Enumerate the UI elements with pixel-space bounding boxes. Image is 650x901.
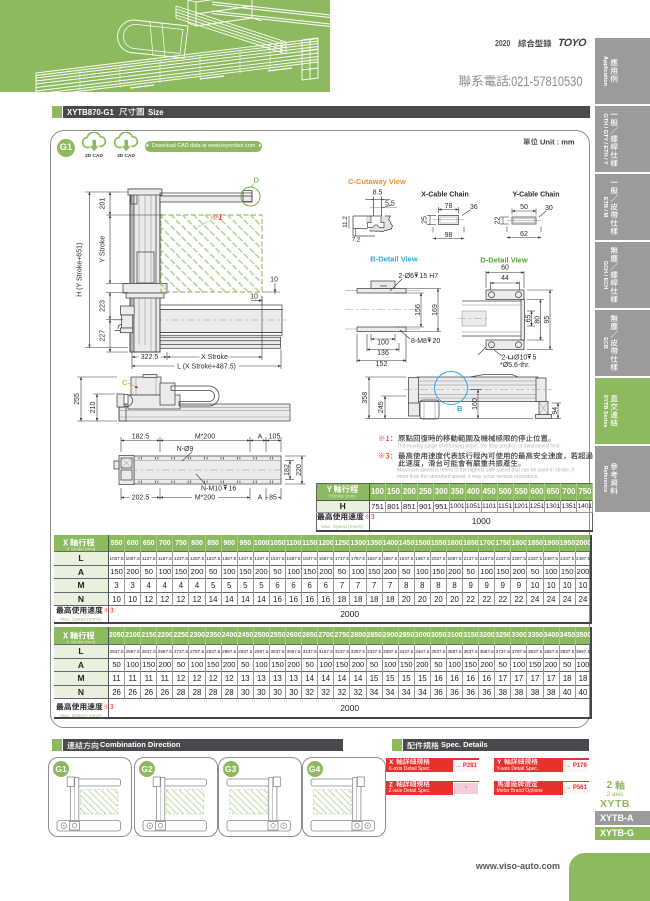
svg-text:N-Ø9: N-Ø9 — [177, 446, 194, 453]
svg-text:8-M8: 8-M8 — [411, 338, 427, 345]
svg-text:Y: Y — [497, 759, 502, 766]
svg-text:44: 44 — [501, 275, 509, 282]
svg-text:220: 220 — [296, 464, 303, 476]
svg-text:182: 182 — [284, 464, 291, 476]
svg-text:358: 358 — [362, 392, 369, 404]
svg-text:B: B — [457, 404, 463, 413]
svg-text:X Stroke (mm): X Stroke (mm) — [66, 640, 96, 645]
svg-text:80: 80 — [535, 316, 542, 324]
svg-text:Max. Speed (mm/s): Max. Speed (mm/s) — [321, 524, 363, 530]
svg-text:more than the strandard speed,: more than the strandard speed, it may oc… — [397, 474, 539, 480]
svg-text:Y Stroke: Y Stroke — [100, 236, 107, 263]
svg-text:8.5: 8.5 — [373, 190, 383, 197]
svg-text:H (Y Stroke+651): H (Y Stroke+651) — [77, 243, 84, 297]
svg-text:Maximum speed is refers to the: Maximum speed is refers to the highest s… — [397, 468, 575, 474]
svg-text:322.5: 322.5 — [141, 354, 159, 361]
svg-text:20: 20 — [433, 338, 441, 345]
svg-text:Z: Z — [389, 782, 393, 789]
svg-text:L (X Stroke+487.5): L (X Stroke+487.5) — [177, 363, 236, 370]
svg-text:30: 30 — [545, 205, 553, 212]
svg-text:YStroke (mm): YStroke (mm) — [328, 494, 356, 499]
svg-text:B-Detail View: B-Detail View — [370, 255, 418, 264]
svg-text:22: 22 — [495, 217, 502, 225]
svg-text:M*200: M*200 — [195, 434, 215, 441]
svg-text:201: 201 — [100, 198, 107, 210]
svg-text:5.5: 5.5 — [385, 201, 395, 208]
svg-text:7.2: 7.2 — [352, 237, 361, 244]
svg-text:The moving range of returning: The moving range of returning origin, th… — [397, 444, 561, 450]
svg-text:202.5: 202.5 — [132, 495, 150, 502]
svg-text:N-M10: N-M10 — [201, 486, 222, 493]
svg-text:10: 10 — [270, 277, 278, 284]
svg-text:160: 160 — [472, 398, 479, 410]
svg-text:152: 152 — [376, 361, 388, 368]
svg-text:65: 65 — [526, 315, 533, 323]
svg-text:85: 85 — [269, 495, 277, 502]
svg-text:Unit : mm: Unit : mm — [540, 138, 575, 147]
svg-text:A: A — [258, 434, 263, 441]
svg-text:X Stroke (mm): X Stroke (mm) — [66, 547, 96, 552]
svg-text:10: 10 — [250, 294, 258, 301]
svg-text:62: 62 — [520, 231, 528, 238]
svg-text:156: 156 — [415, 304, 422, 316]
svg-text:Max. Speed (mm/s): Max. Speed (mm/s) — [60, 617, 102, 623]
svg-text:*Ø5.6-thr.: *Ø5.6-thr. — [500, 362, 530, 369]
svg-text:X: X — [389, 759, 394, 766]
svg-text:255: 255 — [74, 393, 81, 405]
svg-text:36: 36 — [470, 204, 478, 211]
svg-text:D-Detail View: D-Detail View — [480, 256, 528, 265]
svg-text:169: 169 — [432, 304, 439, 316]
svg-text:136: 136 — [377, 350, 389, 357]
svg-text:X-Cable Chain: X-Cable Chain — [421, 192, 468, 199]
svg-text:5: 5 — [533, 355, 537, 362]
svg-text:Y-Cable Chain: Y-Cable Chain — [512, 192, 559, 199]
svg-text:16: 16 — [229, 486, 237, 493]
svg-text:15 H7: 15 H7 — [420, 273, 439, 280]
svg-text:Max. Speed (mm/s): Max. Speed (mm/s) — [60, 713, 102, 719]
svg-text:D: D — [254, 176, 260, 185]
svg-text:C: C — [122, 378, 128, 387]
svg-text:50: 50 — [520, 204, 528, 211]
svg-text:94: 94 — [552, 407, 559, 415]
svg-text:11.2: 11.2 — [342, 216, 349, 228]
svg-text:Ø10: Ø10 — [514, 355, 527, 362]
svg-text:227: 227 — [100, 330, 107, 342]
svg-text:25: 25 — [422, 216, 429, 224]
svg-text:2-Ø6: 2-Ø6 — [399, 273, 415, 280]
svg-text:245: 245 — [378, 401, 385, 413]
svg-text:60: 60 — [501, 265, 509, 272]
svg-text:C-Cutaway View: C-Cutaway View — [348, 177, 406, 186]
svg-text:182.5: 182.5 — [132, 434, 150, 441]
svg-text:105: 105 — [269, 434, 281, 441]
svg-text:98: 98 — [445, 232, 453, 239]
svg-text:78: 78 — [445, 203, 453, 210]
svg-text:2-: 2- — [502, 355, 509, 362]
svg-text:X Stroke: X Stroke — [201, 354, 228, 361]
svg-text:210: 210 — [90, 402, 97, 414]
svg-text:223: 223 — [100, 300, 107, 312]
svg-text:A: A — [258, 495, 263, 502]
svg-text:100: 100 — [377, 340, 389, 347]
svg-text:M*200: M*200 — [195, 495, 215, 502]
svg-text:95: 95 — [544, 316, 551, 324]
